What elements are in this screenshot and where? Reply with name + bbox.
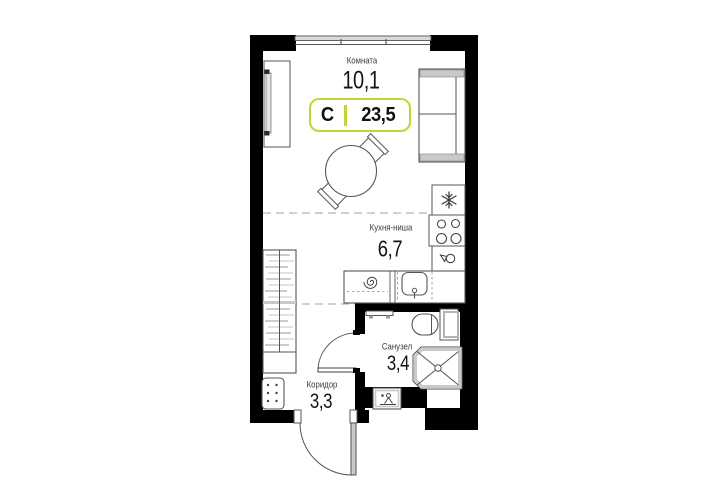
toilet (412, 309, 458, 340)
apartment-badge: С 23,5 (309, 98, 411, 132)
washbasin (373, 388, 401, 409)
shoe-cabinet (262, 378, 284, 409)
fridge (432, 185, 465, 215)
sofa (419, 69, 465, 162)
round-table (326, 146, 377, 197)
kitchen-sink (402, 273, 427, 299)
room-area-bathroom: 3,4 (387, 352, 409, 376)
entrance-door (294, 410, 357, 475)
floor-plan: Комната 10,1 С 23,5 Кухня-ниша 6,7 Сануз… (0, 0, 725, 500)
room-label-komnata: Комната (347, 56, 378, 67)
room-area-corridor: 3,3 (310, 390, 332, 414)
window (295, 36, 431, 45)
corridor-wardrobe (263, 250, 296, 373)
wardrobe-mirror (264, 61, 290, 147)
apartment-total-area: 23,5 (349, 104, 407, 127)
room-label-corridor: Коридор (307, 380, 338, 391)
room-area-kitchen: 6,7 (378, 236, 402, 263)
room-area-komnata: 10,1 (342, 67, 379, 96)
tap-icon (412, 288, 416, 292)
towel-rail (366, 311, 393, 319)
shower-cabin (413, 347, 462, 389)
badge-divider (344, 105, 347, 126)
stove (429, 215, 465, 246)
room-label-bathroom: Санузел (382, 342, 412, 353)
bathroom-door (318, 330, 360, 373)
kettle-cell (432, 246, 465, 272)
apartment-type-label: С (312, 104, 342, 127)
room-label-kitchen: Кухня-ниша (370, 223, 413, 234)
kitchen-counter (344, 271, 465, 303)
